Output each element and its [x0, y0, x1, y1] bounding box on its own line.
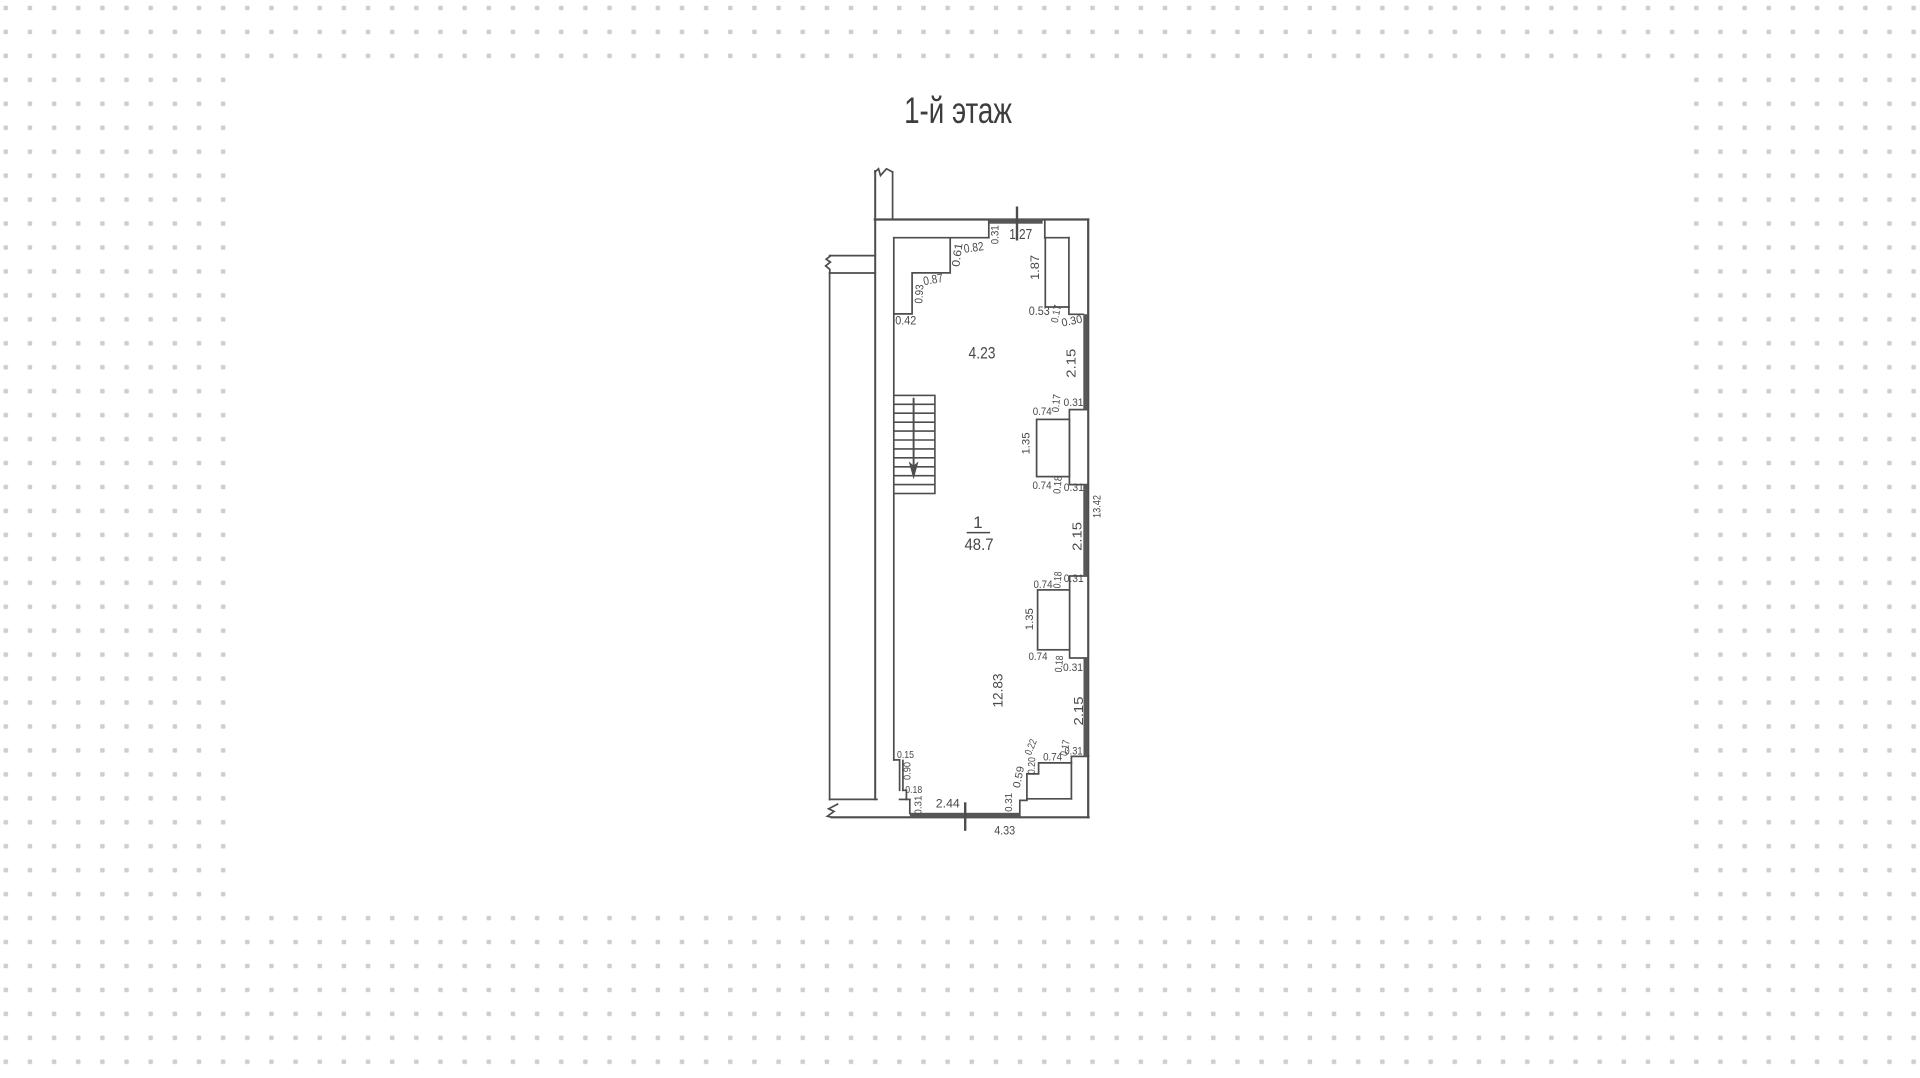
- svg-text:1: 1: [973, 513, 982, 532]
- svg-text:0.74: 0.74: [1029, 651, 1048, 663]
- svg-text:0.18: 0.18: [905, 785, 922, 796]
- svg-text:2.15: 2.15: [1070, 522, 1085, 551]
- svg-text:0.31: 0.31: [1004, 793, 1015, 812]
- svg-text:0.31: 0.31: [1064, 397, 1084, 409]
- svg-text:0.74: 0.74: [1033, 406, 1052, 418]
- svg-text:13.42: 13.42: [1091, 495, 1103, 518]
- svg-text:0.93: 0.93: [913, 284, 926, 304]
- svg-text:12.83: 12.83: [990, 673, 1006, 707]
- svg-text:0.31: 0.31: [914, 795, 925, 814]
- svg-text:0.82: 0.82: [963, 239, 985, 256]
- svg-text:0.53: 0.53: [1029, 304, 1050, 318]
- svg-text:2.15: 2.15: [1063, 349, 1078, 378]
- svg-text:2.15: 2.15: [1071, 697, 1086, 726]
- svg-text:0.31: 0.31: [1064, 482, 1084, 494]
- svg-text:0.17: 0.17: [1051, 394, 1064, 413]
- svg-text:4.33: 4.33: [994, 823, 1015, 837]
- svg-text:1.35: 1.35: [1020, 433, 1032, 455]
- svg-text:1.87: 1.87: [1028, 255, 1042, 280]
- svg-text:0.20: 0.20: [1027, 757, 1039, 775]
- svg-text:0.74: 0.74: [1033, 480, 1052, 492]
- svg-text:2.44: 2.44: [936, 797, 960, 811]
- svg-text:0.31: 0.31: [1064, 573, 1084, 585]
- svg-text:0.31: 0.31: [1065, 746, 1083, 758]
- svg-text:0.42: 0.42: [895, 314, 916, 328]
- svg-text:4.23: 4.23: [969, 343, 996, 362]
- svg-text:0.15: 0.15: [897, 750, 914, 761]
- svg-text:48.7: 48.7: [965, 535, 994, 554]
- svg-text:0.31: 0.31: [1063, 662, 1083, 674]
- svg-text:1-й этаж: 1-й этаж: [904, 89, 1012, 131]
- svg-text:1.35: 1.35: [1024, 608, 1036, 630]
- svg-text:0.31: 0.31: [989, 225, 1001, 244]
- svg-text:1.27: 1.27: [1009, 226, 1032, 243]
- svg-text:0.90: 0.90: [903, 762, 914, 780]
- svg-text:0.74: 0.74: [1034, 579, 1053, 591]
